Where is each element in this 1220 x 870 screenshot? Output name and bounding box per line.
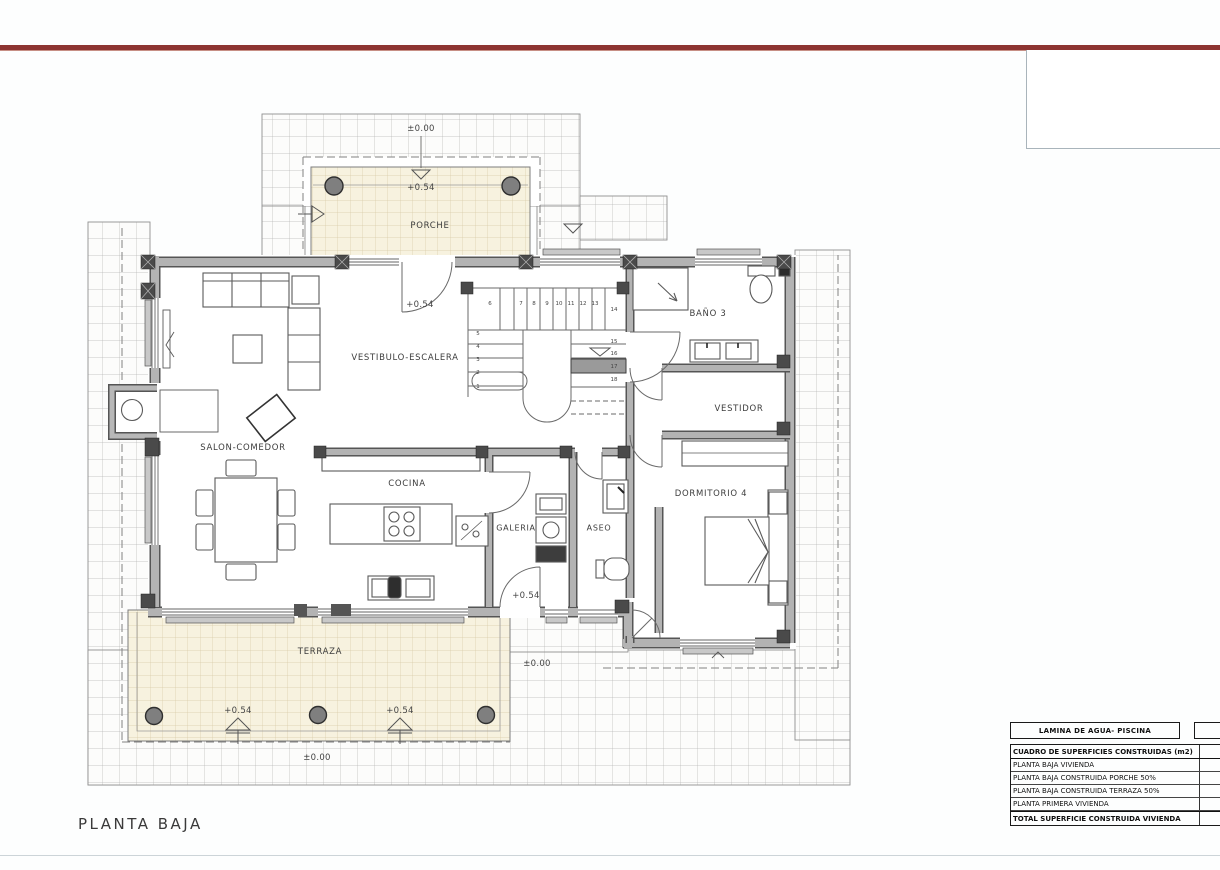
svg-text:6: 6 (488, 301, 492, 307)
table-header-value (1199, 745, 1220, 758)
sink-faucet (388, 577, 401, 598)
svg-text:10: 10 (556, 301, 563, 307)
table-row: PLANTA BAJA CONSTRUIDA TERRAZA 50% (1011, 785, 1220, 798)
cooktop (384, 507, 420, 541)
areas-summary-table: LAMINA DE AGUA- PISCINA CUADRO DE SUPERF… (1010, 722, 1220, 826)
washing-machine (536, 517, 566, 543)
level-terraza-b: +0.54 (386, 706, 414, 716)
pool-row: LAMINA DE AGUA- PISCINA (1010, 722, 1220, 739)
porche-slab (311, 167, 530, 257)
level-terraza-a: +0.54 (224, 706, 252, 716)
room-label-aseo: ASEO (587, 524, 612, 533)
surfaces-table: CUADRO DE SUPERFICIES CONSTRUIDAS (m2) P… (1010, 744, 1220, 826)
table-row: PLANTA BAJA CONSTRUIDA PORCHE 50% (1011, 772, 1220, 785)
svg-text:11: 11 (568, 301, 575, 307)
room-label-salon: SALON-COMEDOR (200, 443, 286, 453)
table-header-row: CUADRO DE SUPERFICIES CONSTRUIDAS (m2) (1011, 745, 1220, 759)
furniture-galeria (536, 494, 566, 562)
svg-text:8: 8 (532, 301, 536, 307)
svg-text:3: 3 (476, 357, 480, 363)
svg-text:5: 5 (476, 331, 480, 337)
svg-text:12: 12 (580, 301, 587, 307)
svg-text:15: 15 (611, 339, 618, 345)
room-label-cocina: COCINA (388, 479, 425, 489)
nightstand (769, 492, 787, 514)
svg-text:16: 16 (611, 351, 618, 357)
pool-row-value-cell (1194, 722, 1220, 739)
svg-text:18: 18 (611, 377, 618, 383)
fireplace (122, 400, 143, 421)
room-label-vestidor: VESTIDOR (714, 404, 763, 414)
level-zero-right: ±0.00 (523, 659, 551, 669)
table-total-row: TOTAL SUPERFICIE CONSTRUIDA VIVIENDA (1011, 811, 1220, 825)
level-galeria: +0.54 (512, 591, 540, 601)
porch-column (325, 177, 343, 195)
svg-text:1: 1 (476, 384, 480, 390)
room-label-porche: PORCHE (410, 221, 449, 231)
nightstand (769, 581, 787, 603)
porch-column (502, 177, 520, 195)
toilet-bowl (750, 275, 772, 303)
svg-text:14: 14 (611, 307, 618, 313)
aseo-toilet (596, 560, 604, 578)
wardrobe (682, 441, 788, 466)
terrace-column (146, 708, 163, 725)
shower (633, 268, 688, 310)
dining-table (215, 478, 277, 562)
room-label-galeria: GALERIA (496, 524, 535, 533)
level-zero-bottom: ±0.00 (303, 753, 331, 763)
room-label-terraza: TERRAZA (298, 647, 342, 657)
plan-title: PLANTA BAJA (78, 815, 203, 833)
table-row: PLANTA BAJA VIVIENDA (1011, 759, 1220, 772)
terrace-column (478, 707, 495, 724)
level-zero-top: ±0.00 (407, 124, 435, 134)
svg-text:7: 7 (519, 301, 523, 307)
svg-text:9: 9 (545, 301, 549, 307)
pool-row-label: LAMINA DE AGUA- PISCINA (1010, 722, 1180, 739)
room-label-dormitorio4: DORMITORIO 4 (675, 489, 747, 499)
level-entrada: +0.54 (406, 300, 434, 310)
svg-text:2: 2 (476, 370, 480, 376)
table-row: PLANTA PRIMERA VIVIENDA (1011, 798, 1220, 811)
level-porche: +0.54 (407, 183, 435, 193)
terraza-slab (128, 610, 510, 741)
bed (705, 517, 769, 585)
svg-text:4: 4 (476, 344, 480, 350)
svg-text:17: 17 (611, 364, 618, 370)
room-label-vestibulo: VESTIBULO-ESCALERA (351, 353, 458, 363)
drawing-sheet: 123456789101112131415161718 (0, 0, 1220, 870)
terrace-column (310, 707, 327, 724)
table-header-label: CUADRO DE SUPERFICIES CONSTRUIDAS (m2) (1011, 745, 1199, 758)
room-label-bano3: BAÑO 3 (689, 309, 726, 319)
svg-text:13: 13 (592, 301, 599, 307)
